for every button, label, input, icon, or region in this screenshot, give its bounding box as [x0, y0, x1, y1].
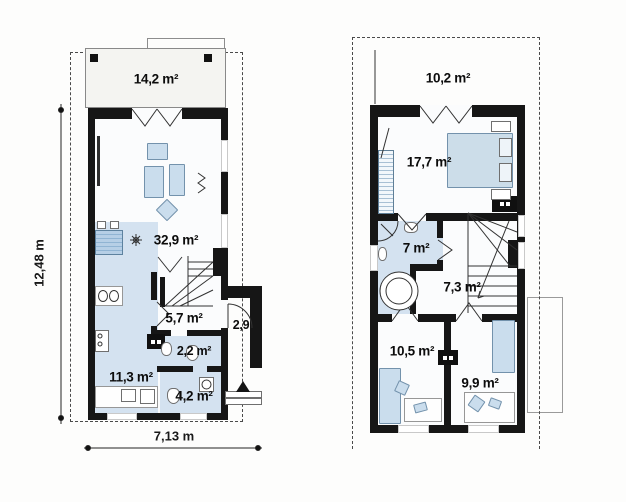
window — [398, 425, 429, 433]
bedroom1-door-opening — [398, 213, 426, 221]
sofa — [144, 166, 164, 198]
entry-door-opening — [221, 300, 228, 328]
bed — [379, 368, 401, 424]
window — [518, 215, 525, 237]
nightstand — [491, 189, 511, 200]
entry-step — [225, 391, 262, 398]
bath2-sink — [378, 247, 387, 261]
pillow — [499, 163, 512, 182]
window — [518, 242, 525, 269]
window — [180, 413, 207, 420]
stair-wall — [508, 240, 517, 268]
fridge — [140, 389, 155, 404]
window — [468, 425, 499, 433]
interior-wall — [157, 366, 193, 372]
interior-wall — [187, 330, 221, 336]
wc-door-opening — [171, 330, 187, 336]
bathroom2-floor — [378, 266, 410, 314]
interior-wall — [151, 272, 157, 300]
room-label-balcony: 10,2 m² — [426, 71, 470, 86]
height-dimension-label: 12,48 m — [32, 239, 47, 287]
sideboard — [97, 136, 100, 186]
terrace-post — [204, 54, 212, 62]
dining-chair — [110, 221, 119, 229]
room-label-landing: 7,3 m² — [443, 280, 480, 295]
kitchen-sink-counter — [95, 286, 123, 306]
armchair — [169, 164, 185, 196]
window — [221, 214, 228, 248]
bed — [492, 320, 515, 373]
bedroom3-door-opening — [456, 314, 482, 322]
dining-table — [95, 230, 123, 255]
room-label-entry-porch: 2,9 — [233, 318, 249, 332]
floor-plan-sheet: 14,2 m² 32,9 m² 11,3 m² 5,7 m² 2,2 m² 4,… — [0, 0, 626, 502]
interior-wall — [207, 366, 221, 372]
room-label-kitchen: 11,3 m² — [109, 370, 153, 385]
room-label-living-room: 32,9 m² — [154, 233, 198, 248]
interior-wall — [410, 264, 416, 314]
room-label-bedroom-1: 17,7 m² — [407, 155, 451, 170]
room-label-bathroom-2: 7 m² — [403, 241, 430, 256]
bath-door-opening — [193, 366, 207, 372]
bath2-door-opening — [437, 238, 443, 260]
window — [107, 413, 137, 420]
terrace-post — [90, 54, 98, 62]
room-label-bathroom: 4,2 m² — [175, 389, 212, 404]
pillow — [499, 138, 512, 157]
french-door-opening — [420, 105, 472, 117]
room-label-terrace: 14,2 m² — [134, 72, 178, 87]
wardrobe — [378, 150, 394, 214]
french-door-opening — [132, 108, 182, 120]
stair-wall — [213, 248, 221, 276]
room-label-wc: 2,2 m² — [177, 344, 211, 358]
flue-shaft — [438, 350, 458, 365]
height-dimension-line — [59, 104, 64, 424]
stair-wall — [160, 277, 165, 307]
armchair — [147, 143, 168, 160]
dining-chair — [97, 221, 106, 229]
bath2-toilet — [404, 222, 418, 233]
entry-step — [225, 398, 262, 405]
wc-sink — [161, 342, 172, 356]
window — [370, 245, 378, 271]
width-dimension-line — [84, 446, 262, 451]
bedroom-divider-wall — [444, 314, 451, 425]
kitchen-appliance — [121, 389, 136, 402]
room-label-hall: 5,7 m² — [165, 311, 202, 326]
room-label-bedroom-2: 10,5 m² — [390, 344, 434, 359]
bedroom2-door-opening — [392, 314, 418, 322]
nightstand — [491, 121, 511, 132]
kitchen-stove — [95, 330, 109, 352]
width-dimension-label: 7,13 m — [154, 429, 194, 444]
room-label-bedroom-3: 9,9 m² — [461, 376, 498, 391]
window — [221, 140, 228, 172]
porch-wall — [250, 286, 262, 368]
